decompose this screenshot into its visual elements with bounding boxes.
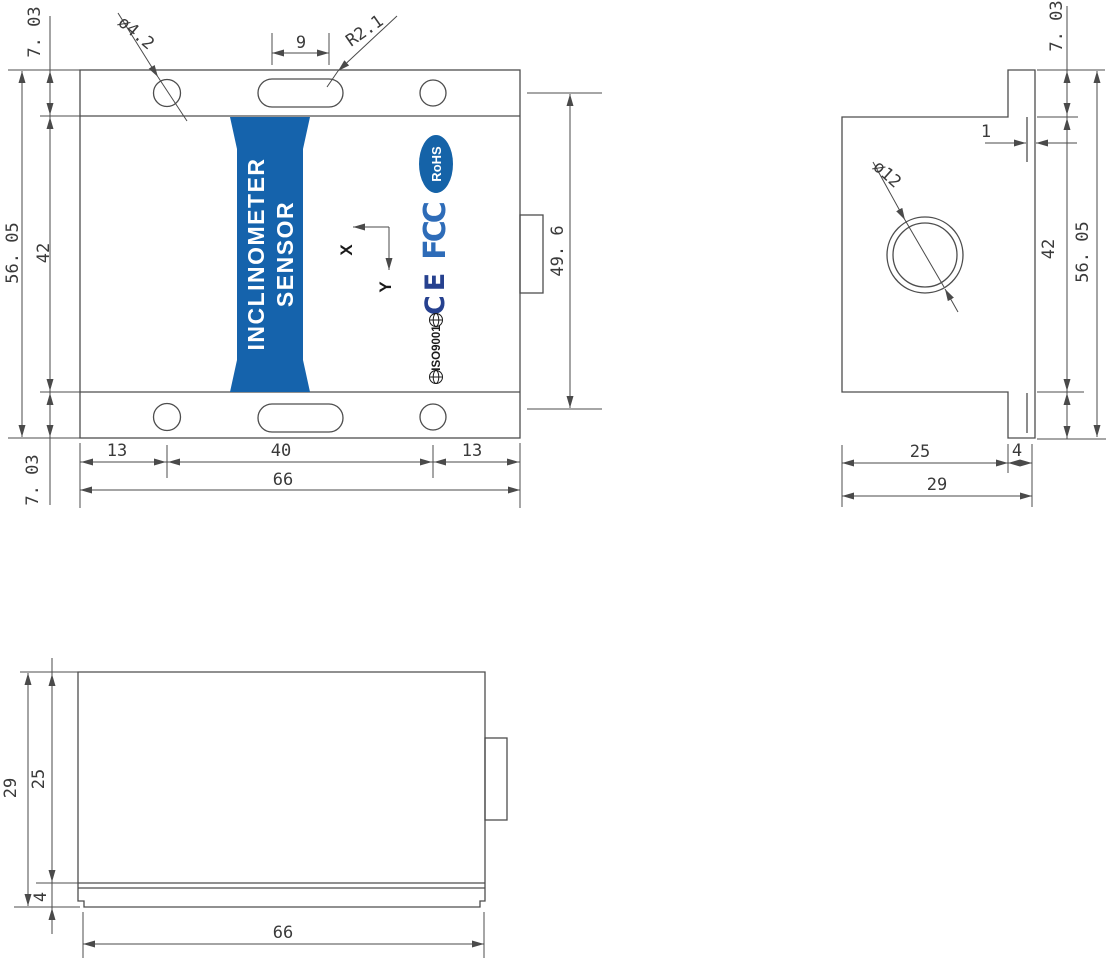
certification-logos: RoHS FCC CE ISO9001 (418, 135, 453, 384)
dim-slot-end-radius: R2.1 (342, 11, 387, 51)
inclinometer-sensor-technical-drawing: INCLINOMETER SENSOR X Y RoHS FCC CE (0, 0, 1115, 960)
side-outline (842, 70, 1035, 438)
mount-hole-bottom-right (420, 404, 446, 430)
bottom-view: 29 25 4 66 (1, 658, 507, 958)
dim-bottom-overall-depth: 29 (1, 778, 21, 798)
x-axis-label: X (337, 244, 356, 256)
ce-logo-text: CE (420, 269, 451, 315)
drawing-canvas: INCLINOMETER SENSOR X Y RoHS FCC CE (0, 0, 1115, 960)
mount-slot-bottom (258, 404, 343, 432)
dim-front-overall-width: 66 (273, 470, 293, 490)
mount-hole-top-right (420, 80, 446, 106)
mount-hole-bottom-left (154, 404, 181, 431)
banner-text-line2: SENSOR (272, 201, 298, 307)
banner-text-line1: INCLINOMETER (243, 157, 269, 350)
dim-side-overall-height: 56. 05 (1073, 221, 1093, 282)
dim-bore-diameter: ø12 (869, 157, 905, 192)
dim-front-overall-height: 56. 05 (3, 222, 23, 283)
dim-bottom-base-thickness: 4 (31, 892, 51, 902)
bottom-outline (78, 672, 507, 907)
axis-indicator: X Y (337, 227, 395, 293)
dim-bottom-body-depth: 25 (29, 769, 49, 789)
front-connector-tab (520, 215, 543, 293)
side-view: ø12 1 7. 03 42 56. 05 (842, 0, 1106, 507)
dim-slot-length: 9 (296, 33, 306, 53)
front-view: INCLINOMETER SENSOR X Y RoHS FCC CE (3, 6, 602, 508)
y-axis-label: Y (376, 281, 395, 293)
bottom-body-outline (78, 672, 485, 907)
banner-shape (230, 117, 310, 392)
dim-flange-thickness: 4 (1012, 441, 1022, 461)
dim-side-inner-height: 42 (1039, 239, 1059, 259)
side-body-outline (842, 70, 1035, 438)
mount-slot-top (258, 79, 343, 107)
globe-icon (430, 371, 443, 384)
side-dimensions: ø12 1 7. 03 42 56. 05 (842, 0, 1106, 507)
rohs-logo-text: RoHS (429, 146, 444, 182)
dim-side-overall-depth: 29 (927, 475, 947, 495)
bottom-connector-tab (485, 738, 507, 820)
front-outline (80, 70, 543, 438)
mount-hole-top-left (154, 80, 181, 107)
dim-front-inner-height: 42 (34, 243, 54, 263)
dim-step-width: 1 (981, 122, 991, 142)
dim-mount-hole-diameter: ø4.2 (114, 13, 158, 55)
iso9001-logo-text: ISO9001 (431, 325, 443, 371)
dim-side-top-flange: 7. 03 (1047, 0, 1067, 51)
bottom-dimensions: 29 25 4 66 (1, 658, 484, 958)
dim-right-hole-offset: 13 (462, 441, 482, 461)
product-banner: INCLINOMETER SENSOR (230, 117, 310, 392)
dim-hole-row-spacing: 49. 6 (548, 225, 568, 276)
dim-bottom-overall-width: 66 (273, 923, 293, 943)
dim-body-depth: 25 (910, 442, 930, 462)
dim-hole-spacing: 40 (271, 441, 291, 461)
fcc-logo-text: FCC (418, 202, 453, 260)
dim-front-top-flange: 7. 03 (25, 6, 45, 57)
dim-front-bottom-flange: 7. 03 (23, 454, 43, 505)
dim-left-hole-offset: 13 (107, 441, 127, 461)
